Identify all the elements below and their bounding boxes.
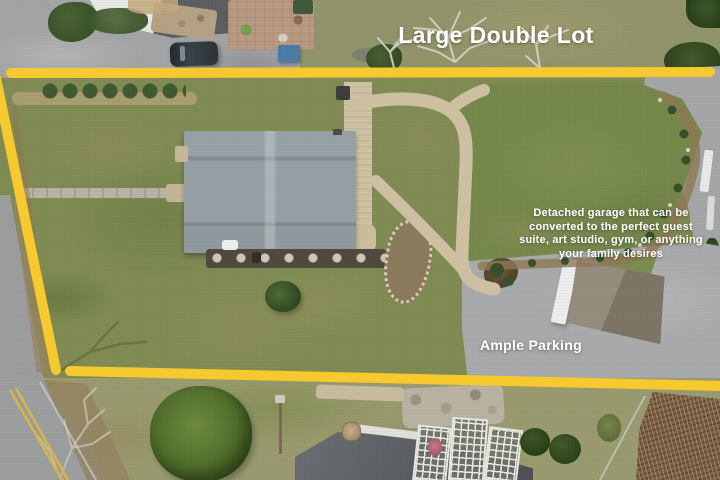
large-green-tree xyxy=(150,386,252,480)
garage-note-line-1: Detached garage that can be xyxy=(518,207,704,221)
pink-flowers xyxy=(428,438,442,456)
pale-shrub xyxy=(597,414,621,442)
chimney xyxy=(333,129,342,135)
round-shrub-2 xyxy=(549,434,581,464)
blue-bin xyxy=(278,45,300,62)
front-walkway xyxy=(18,188,188,198)
grill xyxy=(252,252,261,263)
green-shed-bin xyxy=(293,0,313,14)
garage-note-line-2: converted to the perfect guest xyxy=(518,221,704,235)
front-stoop xyxy=(175,146,188,162)
utility-pole xyxy=(279,398,282,454)
trash-bin-dark xyxy=(336,86,350,100)
pole-sign xyxy=(275,395,285,403)
brush-bottom-right xyxy=(636,392,720,480)
parked-suv xyxy=(170,41,219,67)
bush-top-mid xyxy=(366,44,402,72)
garage-note: Detached garage that can be converted to… xyxy=(518,207,704,261)
trellis-panel-3 xyxy=(483,426,523,480)
headline-label: Large Double Lot xyxy=(394,22,598,48)
suv-windshield xyxy=(180,46,186,61)
patio-table xyxy=(222,240,238,250)
main-house-roof xyxy=(184,131,356,253)
trellis-panel-2 xyxy=(448,417,488,480)
aerial-photo: Large Double Lot Detached garage that ca… xyxy=(0,0,720,480)
garage-note-line-4: your family desires xyxy=(518,248,704,262)
chimney-bottom-house xyxy=(342,422,361,441)
dirt-patch-top xyxy=(128,0,178,14)
back-patio xyxy=(206,249,386,268)
round-bush xyxy=(265,281,301,312)
parking-label: Ample Parking xyxy=(480,337,582,353)
garage-note-line-3: suite, art studio, gym, or anything xyxy=(518,234,704,248)
evergreen-row xyxy=(40,80,186,102)
round-shrub-1 xyxy=(520,428,550,456)
